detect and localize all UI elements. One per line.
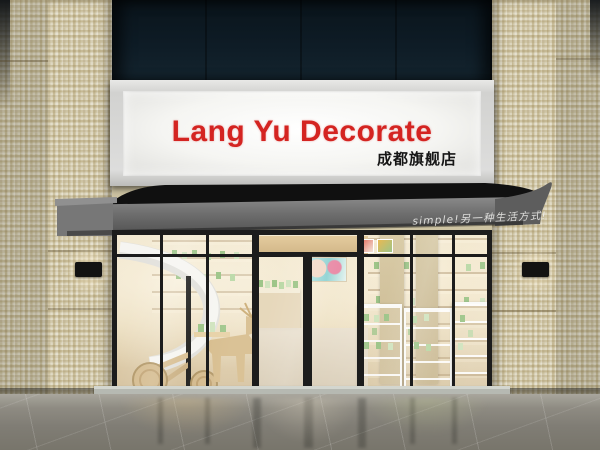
upper-glass-seams <box>112 0 492 84</box>
door-top-rail <box>252 252 364 256</box>
door-meeting-stile <box>303 252 312 396</box>
tile-joint <box>556 58 600 60</box>
wall-sconce-left <box>75 262 102 277</box>
storefront-photo: Lang Yu Decorate 成都旗舰店 simple!另一种生活方式! <box>0 0 600 450</box>
tile-joint <box>0 60 48 62</box>
tile-joint <box>492 310 556 312</box>
awning <box>55 178 560 238</box>
transom-bar <box>362 254 492 257</box>
tile-joint <box>48 308 112 310</box>
shop-sign: Lang Yu Decorate 成都旗舰店 <box>110 80 494 186</box>
door-light-reflection <box>258 398 358 442</box>
sign-subtitle: 成都旗舰店 <box>377 148 457 169</box>
window-mullion <box>206 232 209 396</box>
window-mullion <box>452 232 455 396</box>
door-left-jamb <box>252 232 259 396</box>
window-mullion <box>410 232 413 396</box>
transom-bar <box>112 254 255 257</box>
sign-title: Lang Yu Decorate <box>123 115 481 149</box>
sign-lightbox-panel: Lang Yu Decorate 成都旗舰店 <box>123 91 481 176</box>
frame-right-jamb <box>487 232 492 396</box>
right-corner-shade <box>590 0 600 80</box>
warm-light-reflection <box>118 398 254 436</box>
storefront-head-rail <box>112 230 492 235</box>
wall-sconce-right <box>522 262 549 277</box>
warm-light-reflection <box>364 398 490 436</box>
left-corner-shade <box>0 0 10 110</box>
window-mullion <box>160 232 163 396</box>
door-right-jamb <box>357 232 364 396</box>
